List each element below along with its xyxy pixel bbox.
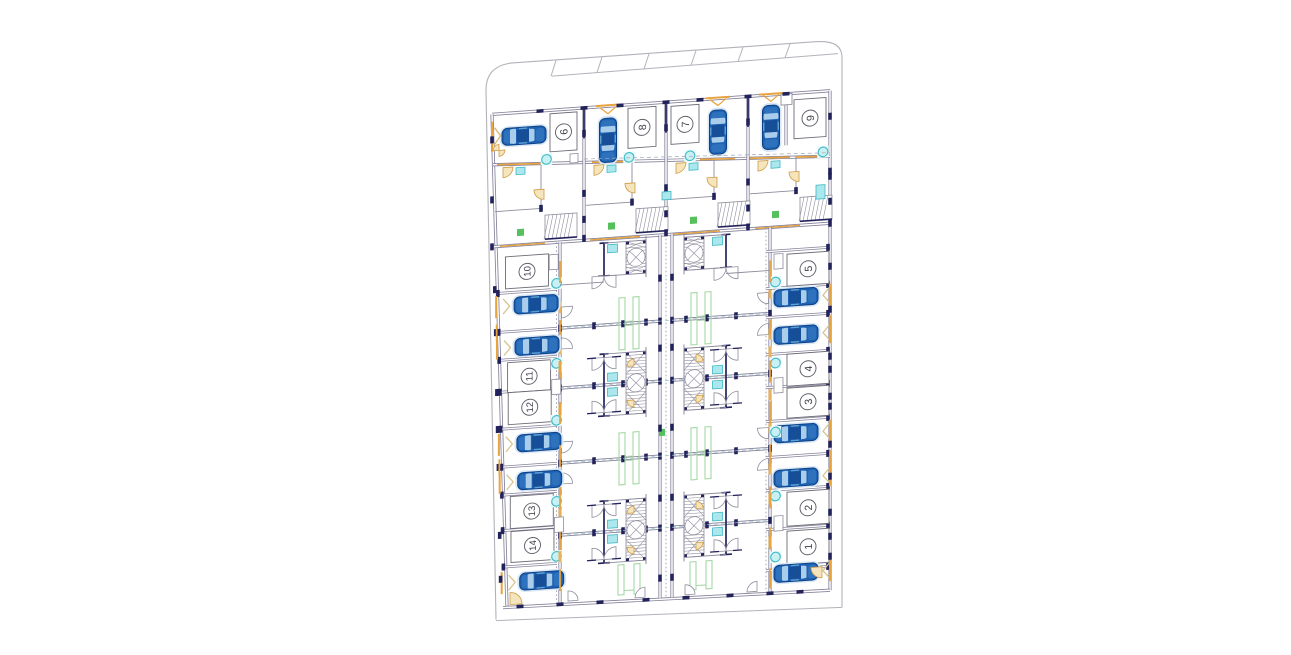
svg-text:7: 7 [680,121,692,128]
svg-text:5: 5 [803,265,815,272]
svg-text:3: 3 [803,398,815,405]
svg-text:11: 11 [525,371,536,382]
svg-text:4: 4 [803,365,815,372]
svg-text:12: 12 [525,401,536,412]
svg-text:10: 10 [522,266,533,277]
svg-text:2: 2 [803,504,815,511]
svg-text:9: 9 [805,115,817,122]
svg-text:14: 14 [528,540,539,551]
svg-text:8: 8 [637,124,649,131]
svg-text:6: 6 [558,128,570,135]
svg-text:13: 13 [527,505,538,516]
svg-text:1: 1 [803,543,815,550]
